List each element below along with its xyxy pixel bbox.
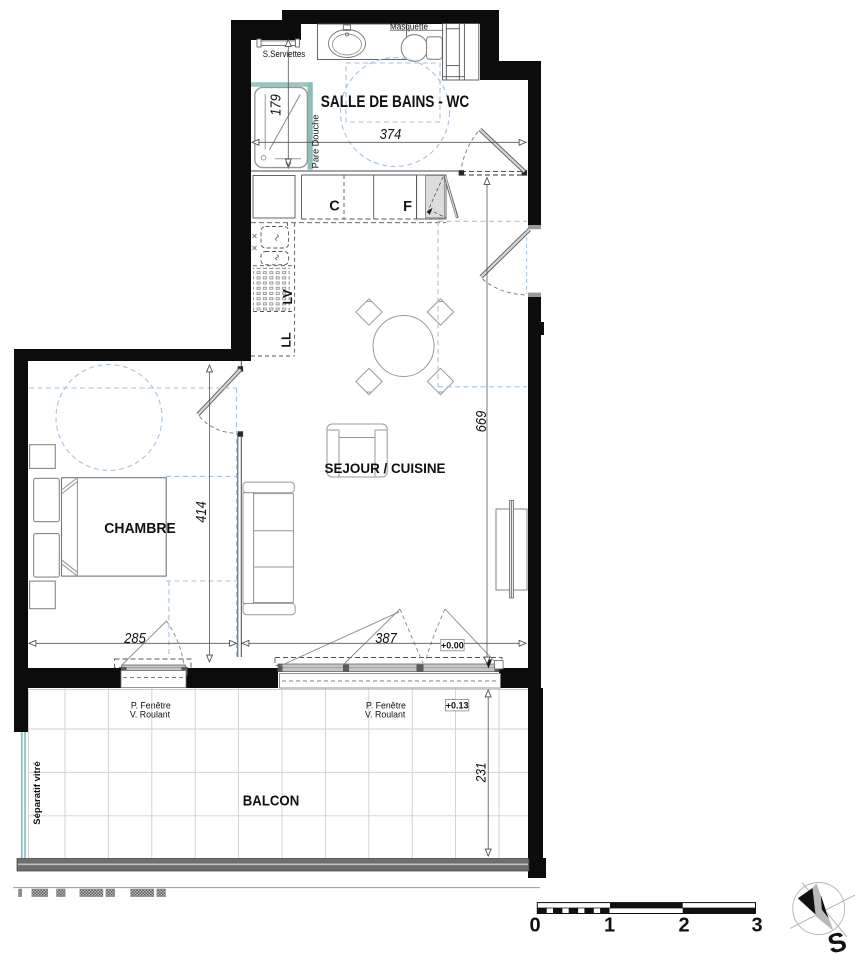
svg-text:0: 0 xyxy=(529,915,540,937)
svg-text:CHAMBRE: CHAMBRE xyxy=(104,521,176,537)
svg-text:669: 669 xyxy=(474,411,490,433)
svg-text:LL: LL xyxy=(280,332,294,348)
svg-text:Séparatif vitré: Séparatif vitré xyxy=(32,761,43,824)
svg-text:Masquette: Masquette xyxy=(390,22,428,32)
svg-text:Pare Douche: Pare Douche xyxy=(311,115,321,169)
svg-text:V. Roulant: V. Roulant xyxy=(130,710,171,720)
svg-text:+0.13: +0.13 xyxy=(446,701,469,711)
svg-text:2: 2 xyxy=(678,915,689,937)
svg-text:179: 179 xyxy=(269,94,285,116)
svg-text:S.Serviettes: S.Serviettes xyxy=(263,49,306,59)
svg-text:387: 387 xyxy=(375,631,397,647)
svg-text:374: 374 xyxy=(380,127,402,143)
svg-text:414: 414 xyxy=(194,501,210,523)
svg-text:SALLE DE BAINS - WC: SALLE DE BAINS - WC xyxy=(321,93,470,111)
svg-text:+0.00: +0.00 xyxy=(441,640,464,650)
svg-text:F: F xyxy=(403,199,412,215)
svg-text:LV: LV xyxy=(281,289,295,305)
svg-text:SEJOUR / CUISINE: SEJOUR / CUISINE xyxy=(325,460,446,476)
svg-text:231: 231 xyxy=(474,762,489,783)
svg-text:V. Roulant: V. Roulant xyxy=(365,710,406,720)
svg-text:3: 3 xyxy=(751,915,762,937)
svg-text:C: C xyxy=(329,199,340,215)
svg-text:285: 285 xyxy=(123,631,146,647)
svg-text:1: 1 xyxy=(604,915,615,937)
svg-text:BALCON: BALCON xyxy=(243,793,300,810)
